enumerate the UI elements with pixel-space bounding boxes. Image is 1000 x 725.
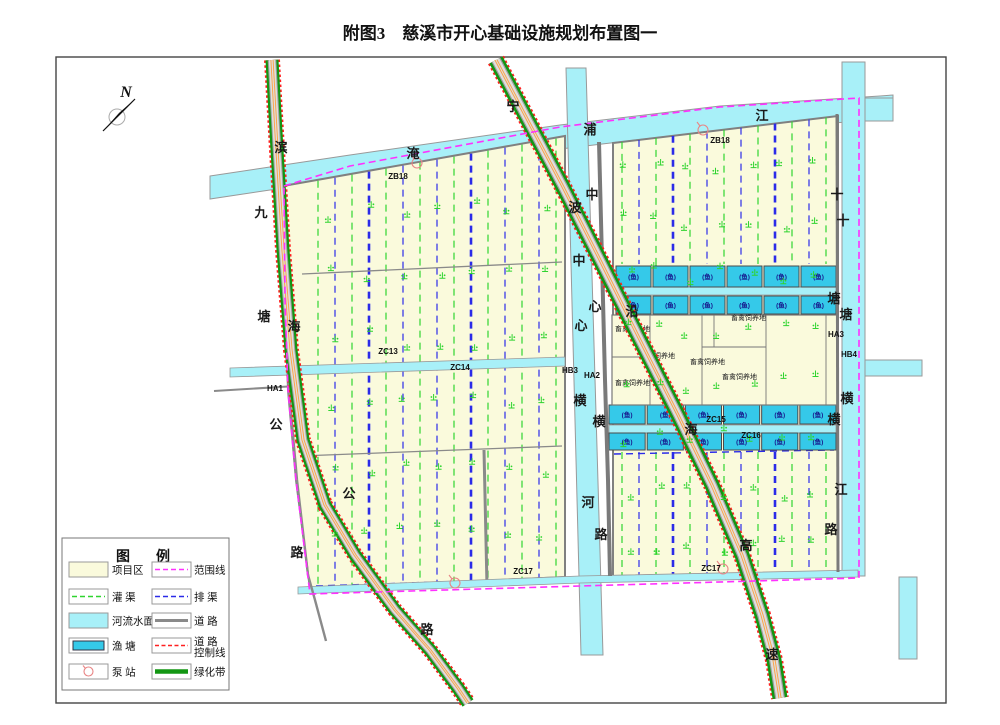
vegetation-icon: [371, 400, 373, 402]
vegetation-icon: [470, 394, 472, 396]
map-char-label: 波: [568, 200, 582, 215]
vegetation-icon: [434, 205, 436, 207]
vegetation-icon: [474, 199, 476, 201]
vegetation-icon: [437, 345, 439, 347]
vegetation-icon: [712, 170, 714, 172]
vegetation-icon: [788, 228, 790, 230]
vegetation-icon: [401, 525, 403, 527]
vegetation-icon: [506, 466, 508, 468]
vegetation-icon: [817, 325, 819, 327]
vegetation-icon: [620, 443, 622, 445]
vegetation-icon: [811, 493, 813, 495]
map-char-label: 十: [836, 213, 849, 228]
vegetation-icon: [752, 271, 754, 273]
vegetation-icon: [408, 461, 410, 463]
vegetation-icon: [721, 427, 723, 429]
vegetation-icon: [503, 210, 505, 212]
vegetation-icon: [404, 213, 406, 215]
map-char-label: 横: [573, 393, 587, 408]
fish-pond-label: (鱼): [665, 272, 676, 281]
vegetation-icon: [658, 550, 660, 552]
vegetation-icon: [442, 345, 444, 347]
vegetation-icon: [396, 525, 398, 527]
legend-label: 控制线: [194, 646, 226, 659]
fish-pond-label: (鱼): [776, 301, 787, 310]
vegetation-icon: [332, 338, 334, 340]
map-char-label: 中: [585, 187, 598, 202]
vegetation-icon: [750, 325, 752, 327]
vegetation-icon: [726, 551, 728, 553]
vegetation-icon: [404, 346, 406, 348]
vegetation-icon: [811, 273, 813, 275]
vegetation-icon: [780, 375, 782, 377]
vegetation-icon: [439, 522, 441, 524]
code-label: ZB18: [710, 136, 730, 145]
river-stub-right: [865, 360, 922, 376]
vegetation-icon: [783, 436, 785, 438]
legend-swatch-area-river: [69, 613, 108, 628]
vegetation-icon: [657, 430, 659, 432]
legend-label: 泵 站: [112, 666, 136, 679]
vegetation-icon: [541, 334, 543, 336]
vegetation-icon: [337, 466, 339, 468]
vegetation-icon: [543, 399, 545, 401]
vegetation-icon: [654, 550, 656, 552]
road-west-stub: [214, 386, 296, 391]
vegetation-icon: [756, 382, 758, 384]
map-char-label: 河: [581, 495, 594, 510]
vegetation-icon: [509, 533, 511, 535]
vegetation-icon: [684, 484, 686, 486]
map-char-label: 塘: [827, 291, 840, 306]
vegetation-icon: [625, 321, 627, 323]
vegetation-icon: [687, 438, 689, 440]
vegetation-icon: [687, 544, 689, 546]
legend-swatch-area-project: [69, 562, 108, 577]
vegetation-icon: [625, 443, 627, 445]
legend-label: 项目区: [112, 565, 144, 577]
vegetation-icon: [650, 215, 652, 217]
map-char-label: 心: [588, 299, 601, 314]
vegetation-icon: [403, 461, 405, 463]
north-label: N: [119, 84, 133, 101]
vegetation-icon: [435, 396, 437, 398]
vegetation-icon: [812, 538, 814, 540]
vegetation-icon: [788, 322, 790, 324]
map-char-label: 沿: [625, 304, 638, 319]
legend-label: 排 渠: [194, 591, 218, 604]
fish-pond-label: (鱼): [702, 272, 713, 281]
fish-pond-label: (鱼): [628, 272, 639, 281]
vegetation-icon: [786, 497, 788, 499]
map-char-label: 路: [824, 522, 838, 537]
livestock-label: 畜禽饲养地: [731, 313, 766, 322]
vegetation-icon: [469, 270, 471, 272]
vegetation-icon: [476, 346, 478, 348]
vegetation-icon: [813, 325, 815, 327]
code-label: HB4: [841, 350, 858, 359]
code-label: ZB18: [388, 172, 408, 181]
vegetation-icon: [633, 268, 635, 270]
vegetation-icon: [662, 381, 664, 383]
code-label: HB3: [562, 366, 579, 375]
code-label: ZC13: [378, 347, 398, 356]
livestock-label: 畜禽饲养地: [690, 357, 725, 366]
vegetation-icon: [439, 274, 441, 276]
vegetation-icon: [721, 496, 723, 498]
vegetation-icon: [513, 336, 515, 338]
livestock-label: 畜禽饲养地: [722, 372, 757, 381]
vegetation-icon: [687, 165, 689, 167]
vegetation-icon: [401, 275, 403, 277]
vegetation-icon: [629, 268, 631, 270]
vegetation-icon: [333, 407, 335, 409]
map-char-label: 宁: [506, 99, 519, 114]
vegetation-icon: [513, 404, 515, 406]
vegetation-icon: [750, 486, 752, 488]
map-char-label: 横: [840, 391, 854, 406]
vegetation-icon: [364, 278, 366, 280]
vegetation-icon: [542, 268, 544, 270]
vegetation-icon: [511, 466, 513, 468]
legend-label: 绿化带: [194, 666, 226, 679]
vegetation-icon: [547, 473, 549, 475]
vegetation-icon: [505, 533, 507, 535]
vegetation-icon: [506, 267, 508, 269]
vegetation-icon: [328, 267, 330, 269]
code-label: ZC14: [450, 363, 470, 372]
vegetation-icon: [367, 327, 369, 329]
pond-area-icon: [73, 641, 104, 650]
map-char-label: 公: [269, 417, 282, 432]
canal-east-lower: [609, 425, 836, 433]
vegetation-icon: [783, 322, 785, 324]
code-label: HA2: [584, 371, 601, 380]
map-char-label: 淹: [406, 146, 420, 161]
vegetation-icon: [632, 550, 634, 552]
vegetation-icon: [625, 212, 627, 214]
north-arrow-icon: N: [103, 84, 135, 131]
vegetation-icon: [812, 220, 814, 222]
vegetation-icon: [624, 383, 626, 385]
vegetation-icon: [779, 436, 781, 438]
vegetation-icon: [478, 199, 480, 201]
vegetation-icon: [687, 281, 689, 283]
vegetation-icon: [776, 162, 778, 164]
fish-pond-label: (鱼): [776, 272, 787, 281]
vegetation-icon: [812, 373, 814, 375]
map-char-label: 十: [830, 187, 843, 202]
vegetation-icon: [807, 493, 809, 495]
vegetation-icon: [473, 527, 475, 529]
map-char-label: 塘: [839, 307, 852, 322]
vegetation-icon: [431, 396, 433, 398]
vegetation-icon: [368, 278, 370, 280]
north-needle-line: [103, 99, 135, 131]
vegetation-icon: [628, 496, 630, 498]
vegetation-icon: [399, 398, 401, 400]
vegetation-icon: [745, 325, 747, 327]
vegetation-icon: [692, 281, 694, 283]
fish-pond-label: (鱼): [813, 301, 824, 310]
vegetation-icon: [367, 400, 369, 402]
vegetation-icon: [620, 212, 622, 214]
vegetation-icon: [469, 527, 471, 529]
vegetation-icon: [686, 334, 688, 336]
vegetation-icon: [366, 529, 368, 531]
map-char-label: 九: [253, 205, 267, 220]
vegetation-icon: [543, 473, 545, 475]
fish-pond-label: (鱼): [736, 410, 747, 419]
vegetation-icon: [549, 207, 551, 209]
vegetation-icon: [725, 496, 727, 498]
map-char-label: 滨: [274, 140, 287, 155]
map-char-label: 江: [834, 482, 847, 497]
vegetation-icon: [688, 484, 690, 486]
vegetation-icon: [540, 536, 542, 538]
map-char-label: 横: [592, 414, 606, 429]
vegetation-icon: [434, 522, 436, 524]
vegetation-icon: [687, 390, 689, 392]
vegetation-icon: [812, 436, 814, 438]
vegetation-icon: [439, 205, 441, 207]
vegetation-icon: [409, 213, 411, 215]
vegetation-icon: [816, 220, 818, 222]
vegetation-icon: [371, 327, 373, 329]
fish-pond-label: (鱼): [739, 272, 750, 281]
code-label: HA1: [267, 384, 284, 393]
map-char-label: 心: [574, 318, 587, 333]
livestock-label: 畜禽饲养地: [615, 378, 650, 387]
vegetation-icon: [333, 466, 335, 468]
vegetation-icon: [436, 465, 438, 467]
vegetation-icon: [755, 542, 757, 544]
vegetation-icon: [361, 529, 363, 531]
map-char-label: 高: [739, 538, 752, 553]
vegetation-icon: [817, 373, 819, 375]
river-stub-bottomright: [899, 577, 917, 659]
vegetation-icon: [815, 273, 817, 275]
vegetation-icon: [469, 460, 471, 462]
vegetation-icon: [657, 381, 659, 383]
vegetation-icon: [713, 335, 715, 337]
vegetation-icon: [406, 275, 408, 277]
vegetation-icon: [329, 218, 331, 220]
planning-map-page: 附图3 慈溪市开心基础设施规划布置图一 N (鱼)(鱼)(鱼)(鱼)(鱼)(鱼)…: [0, 0, 1000, 725]
vegetation-icon: [752, 382, 754, 384]
vegetation-icon: [630, 321, 632, 323]
fish-pond-label: (鱼): [774, 437, 785, 446]
vegetation-icon: [717, 265, 719, 267]
vegetation-icon: [536, 536, 538, 538]
map-char-label: 中: [572, 253, 585, 268]
vegetation-icon: [751, 164, 753, 166]
vegetation-icon: [814, 159, 816, 161]
vegetation-icon: [723, 223, 725, 225]
fish-pond-label: (鱼): [622, 410, 633, 419]
fish-pond-label: (鱼): [739, 301, 750, 310]
map-canvas: 附图3 慈溪市开心基础设施规划布置图一 N (鱼)(鱼)(鱼)(鱼)(鱼)(鱼)…: [0, 0, 1000, 725]
vegetation-icon: [368, 203, 370, 205]
vegetation-icon: [717, 170, 719, 172]
vegetation-icon: [756, 271, 758, 273]
vegetation-icon: [655, 264, 657, 266]
vegetation-icon: [628, 550, 630, 552]
vegetation-icon: [474, 394, 476, 396]
vegetation-icon: [683, 390, 685, 392]
road-zhongxinheng: [599, 142, 610, 576]
vegetation-icon: [755, 164, 757, 166]
vegetation-icon: [725, 427, 727, 429]
vegetation-icon: [403, 398, 405, 400]
river-stub-topright: [865, 98, 893, 121]
vegetation-icon: [628, 383, 630, 385]
fish-pond-label: (鱼): [660, 437, 671, 446]
vegetation-icon: [755, 486, 757, 488]
vegetation-icon: [440, 465, 442, 467]
legend-label: 道 路: [194, 615, 218, 628]
vegetation-icon: [745, 223, 747, 225]
vegetation-icon: [620, 163, 622, 165]
vegetation-icon: [713, 385, 715, 387]
vegetation-icon: [472, 346, 474, 348]
vegetation-icon: [509, 336, 511, 338]
fish-pond-label: (鱼): [812, 437, 823, 446]
vegetation-icon: [661, 322, 663, 324]
fish-pond-label: (鱼): [774, 410, 785, 419]
vegetation-icon: [544, 207, 546, 209]
code-label: ZC15: [706, 415, 726, 424]
legend: 图 例 项目区范围线灌 渠排 渠河流水面道 路渔 塘道 路控制线泵 站绿化带: [62, 538, 229, 690]
vegetation-icon: [663, 484, 665, 486]
vegetation-icon: [662, 161, 664, 163]
vegetation-icon: [328, 407, 330, 409]
vegetation-icon: [374, 472, 376, 474]
vegetation-icon: [783, 538, 785, 540]
code-label: HA3: [828, 330, 845, 339]
vegetation-icon: [545, 334, 547, 336]
code-label: ZC16: [741, 431, 761, 440]
road-east-boundary: [837, 114, 838, 572]
map-char-label: 速: [765, 647, 778, 662]
vegetation-icon: [717, 335, 719, 337]
code-label: ZC17: [513, 567, 533, 576]
vegetation-icon: [332, 532, 334, 534]
vegetation-icon: [721, 265, 723, 267]
vegetation-icon: [782, 497, 784, 499]
vegetation-icon: [718, 385, 720, 387]
vegetation-icon: [538, 399, 540, 401]
vegetation-icon: [473, 270, 475, 272]
vegetation-icon: [685, 227, 687, 229]
map-char-label: 路: [420, 622, 434, 637]
legend-label: 灌 渠: [112, 592, 136, 604]
vegetation-icon: [719, 223, 721, 225]
canal-east-upper: [614, 287, 836, 295]
fish-pond-label: (鱼): [812, 410, 823, 419]
vegetation-icon: [780, 162, 782, 164]
vegetation-icon: [681, 334, 683, 336]
vegetation-icon: [654, 215, 656, 217]
vegetation-icon: [681, 227, 683, 229]
legend-label: 道 路: [194, 635, 218, 648]
vegetation-icon: [332, 267, 334, 269]
vegetation-icon: [682, 165, 684, 167]
vegetation-icon: [661, 430, 663, 432]
vegetation-icon: [808, 538, 810, 540]
vegetation-icon: [780, 280, 782, 282]
vegetation-icon: [750, 223, 752, 225]
vegetation-icon: [632, 496, 634, 498]
vegetation-icon: [808, 436, 810, 438]
vegetation-icon: [779, 538, 781, 540]
map-char-label: 海: [684, 422, 697, 437]
legend-label: 河流水面: [112, 615, 154, 628]
legend-label: 范围线: [194, 564, 226, 577]
map-char-label: 路: [290, 545, 304, 560]
fish-pond-label: (鱼): [702, 301, 713, 310]
vegetation-icon: [373, 203, 375, 205]
fish-pond-label: (鱼): [665, 301, 676, 310]
vegetation-icon: [722, 551, 724, 553]
map-char-label: 横: [827, 412, 841, 427]
vegetation-icon: [785, 375, 787, 377]
map-char-label: 海: [287, 319, 300, 334]
legend-label: 渔 塘: [112, 640, 136, 653]
vegetation-icon: [784, 228, 786, 230]
vegetation-icon: [369, 472, 371, 474]
vegetation-icon: [659, 484, 661, 486]
vegetation-icon: [508, 210, 510, 212]
vegetation-icon: [444, 274, 446, 276]
vegetation-icon: [510, 267, 512, 269]
vegetation-icon: [683, 544, 685, 546]
vegetation-icon: [408, 346, 410, 348]
vegetation-icon: [785, 280, 787, 282]
page-title: 附图3 慈溪市开心基础设施规划布置图一: [343, 23, 658, 43]
vegetation-icon: [809, 159, 811, 161]
vegetation-icon: [658, 161, 660, 163]
code-label: ZC17: [701, 564, 721, 573]
map-char-label: 路: [594, 527, 608, 542]
vegetation-icon: [509, 404, 511, 406]
map-char-label: 江: [755, 108, 768, 123]
vegetation-icon: [691, 438, 693, 440]
map-char-label: 塘: [257, 309, 270, 324]
vegetation-icon: [624, 163, 626, 165]
vegetation-icon: [546, 268, 548, 270]
legend-swatch-pump: [69, 664, 108, 679]
vegetation-icon: [336, 532, 338, 534]
vegetation-icon: [325, 218, 327, 220]
vegetation-icon: [337, 338, 339, 340]
map-char-label: 公: [342, 486, 355, 501]
map-char-label: 浦: [583, 122, 596, 137]
vegetation-icon: [656, 322, 658, 324]
fish-pond-label: (鱼): [813, 272, 824, 281]
vegetation-icon: [651, 264, 653, 266]
vegetation-icon: [473, 460, 475, 462]
